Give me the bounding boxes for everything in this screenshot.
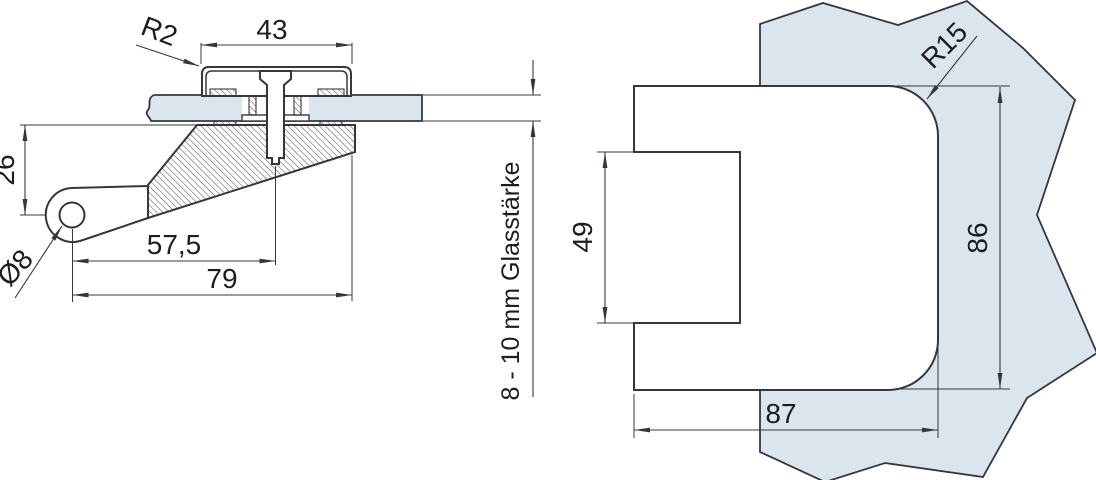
gasket-bottom-right xyxy=(320,121,342,126)
front-view: 49 86 87 R15 xyxy=(567,1,1096,480)
clamp-body-section xyxy=(148,125,355,218)
hole-diameter-label: Ø8 xyxy=(0,243,39,292)
dim-pivot-to-screw-label: 57,5 xyxy=(147,229,202,260)
gasket-top-right xyxy=(318,89,344,96)
bushing-wall-left xyxy=(249,96,256,115)
gasket-top-left xyxy=(210,89,236,96)
bushing-wall-right xyxy=(294,96,301,115)
gasket-bottom-left xyxy=(214,121,236,126)
dim-cover-width-label: 43 xyxy=(256,14,287,45)
dim-body-height-label: 86 xyxy=(962,222,993,253)
technical-drawing-canvas: 43 R2 26 57,5 79 Ø8 8 - 10 mm Glasstärke xyxy=(0,0,1096,480)
hinge-body-front xyxy=(634,86,938,390)
glass-thickness-label: 8 - 10 mm Glasstärke xyxy=(497,162,525,401)
dim-slot-height-label: 49 xyxy=(567,221,598,252)
side-section-view: 43 R2 26 57,5 79 Ø8 8 - 10 mm Glasstärke xyxy=(0,10,541,400)
dim-body-width-label: 87 xyxy=(765,398,796,429)
corner-radius-label: R2 xyxy=(137,10,182,52)
dim-pivot-to-edge-label: 79 xyxy=(206,263,237,294)
dim-pivot-height-label: 26 xyxy=(0,154,20,185)
pivot-hole xyxy=(60,203,85,228)
hinge-technical-drawing: 43 R2 26 57,5 79 Ø8 8 - 10 mm Glasstärke xyxy=(0,0,1096,480)
